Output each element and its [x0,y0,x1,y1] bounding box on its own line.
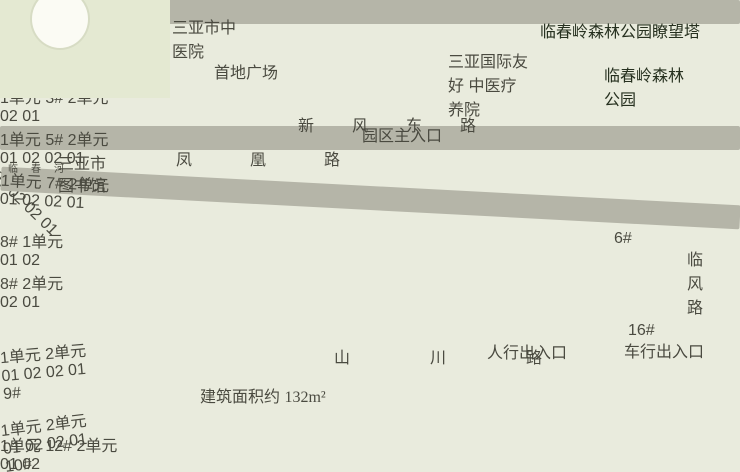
building-number-badge: 8# [0,234,18,251]
road-label-west: 凤凰路 [176,146,398,170]
unit-01: 01 [22,108,40,125]
poi-label: 临春岭森林公园 [604,68,684,109]
unit-label: 1单元 [0,173,42,192]
poi-forest-park: 临春岭森林公园 [604,62,686,110]
tree-cluster [52,20,162,92]
unit-label: 2单元 [68,132,109,149]
unit-02: 02 [22,252,40,269]
poi-shoudi-plaza: 首地广场 [214,59,278,83]
unit-01: 01 [0,252,18,269]
unit-02: 02 [23,365,42,383]
building-number-badge: 10# [4,456,33,472]
poi-sanatorium: 三亚国际友好 中医疗养院 [448,48,532,120]
road-gate [680,424,697,469]
legend-item-132: 建筑面积约 132m² [200,383,326,407]
building-number-badge: 5# [45,132,63,149]
unit-02: 02 [0,108,18,125]
poi-hospital: 三亚市中医院 [172,14,248,62]
road-label-east: 临风路 [687,246,740,318]
legend-prefix: 建筑面积约 [200,389,280,406]
unit-02: 02 [24,436,44,455]
building-16-badge: 16# [628,322,655,340]
building-number-badge: 9# [2,385,21,403]
unit-02: 02 [0,294,18,311]
unit-02: 02 [46,434,66,453]
poi-label: 临春岭森林公园瞭望塔 [540,24,700,41]
unit-01: 01 [0,191,18,209]
poi-label: 三亚市中医院 [172,20,236,61]
poi-label: 图书馆 [58,178,106,195]
unit-label: 2单元 [22,276,63,293]
entrance-main-label: 园区主入口 [362,122,442,146]
unit-01: 01 [67,361,86,379]
unit-01: 01 [22,294,40,311]
river-label: 临春河 [8,160,77,175]
building-6-badge: 6# [614,230,632,248]
unit-01: 01 [1,367,20,385]
poi-label: 首地广场 [214,65,278,82]
unit-02: 02 [45,363,64,381]
legend-area: 132m² [284,389,325,406]
unit-label: 1单元 [0,132,41,149]
site-plan-map: 1单元 1# 2单元 01 02 02 01 1单元 2# 2单元 01 02 … [0,0,740,472]
entrance-se-label: 车行出入口 [624,338,704,362]
unit-02: 02 [22,192,41,210]
building-number-badge: 8# [0,276,18,293]
poi-watchtower: 临春岭森林公园瞭望塔 [540,18,700,42]
entrance-sw-label: 人行出入口 [487,339,567,363]
road-label-south: 山川路 [334,344,622,368]
unit-01: 01 [2,439,22,458]
unit-01: 01 [68,431,88,450]
